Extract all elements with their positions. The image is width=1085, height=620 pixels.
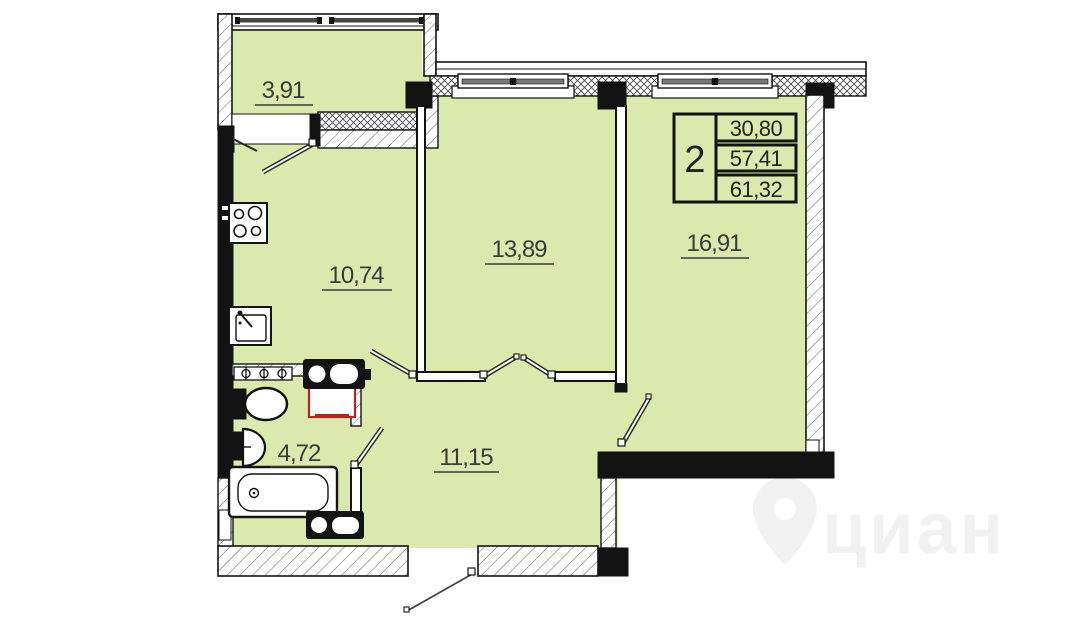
vanity-counter-icon [306,511,364,539]
cian-watermark: циан [753,477,1006,569]
wall-notch [806,440,819,453]
window [452,74,574,98]
right-wall [806,95,824,453]
cian-watermark-text: циан [822,489,1006,569]
kitchen-sink-icon [229,307,271,345]
wall-corner [218,126,234,152]
balcony-door-opening [232,114,312,144]
area-value-3: 61,32 [730,177,783,202]
room-area-label-room1: 13,89 [491,236,547,263]
washbasin-icon [231,429,265,466]
balcony-left-wall [218,14,232,130]
towel-rail-icon [234,367,292,380]
vanity-counter-icon [303,359,371,389]
balcony-right-wall [424,14,436,76]
room-area-label-balcony: 3,91 [262,77,305,104]
toilet-icon [231,388,287,420]
entry-door-swing [404,568,475,612]
rooms-count-label: 2 [684,139,705,181]
wall-corner [596,548,628,576]
room-area-label-room2: 16,91 [686,230,742,257]
room1-south-wall [555,372,617,381]
floor-plan-page: 2 30,80 57,41 61,32 3,91 10,74 13,89 16,… [0,0,1085,620]
balcony-glazing [218,14,438,30]
bottom-wall [478,546,598,576]
washing-machine-icon [309,384,355,418]
bathroom-right-wall [351,468,361,514]
window [652,74,778,98]
room1-south-wall [417,372,485,381]
room-area-label-bathroom: 4,72 [278,440,321,467]
floor-plan-svg: 2 30,80 57,41 61,32 3,91 10,74 13,89 16,… [0,0,1085,620]
room-area-label-hallway: 11,15 [439,444,493,471]
door-post [615,384,627,392]
hallway-right-wall [601,478,616,548]
bathtub-icon [229,467,337,517]
room-area-label-kitchen: 10,74 [328,262,384,289]
column [598,82,626,109]
cian-pin-icon [753,477,817,565]
room2-bottom-wall [598,452,834,478]
balcony-bottom-wall [318,112,424,130]
bottom-wall [218,546,408,576]
column [406,82,432,108]
area-value-1: 30,80 [730,116,783,141]
partition-kitchen-room1 [417,106,425,374]
area-value-2: 57,41 [730,146,783,171]
stove-icon [229,203,267,243]
partition-hall-room2 [616,106,626,384]
balcony-bottom-wall [318,130,424,148]
